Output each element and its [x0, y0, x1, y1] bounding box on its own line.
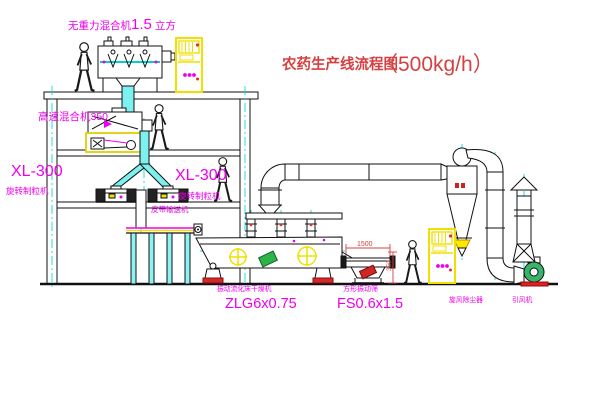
- cad-drawing-canvas: 1500 350 农药生产线流程图 （500kg/h） 无重力混合机1.5立方 …: [0, 0, 600, 403]
- label-granulator-left-name: 旋转制粒机: [6, 186, 49, 196]
- cyclone-separator: [447, 148, 514, 282]
- person-figure-ground: [404, 241, 421, 283]
- label-belt-conveyor: 皮带输送机: [151, 204, 189, 214]
- rotary-granulator-left: [96, 189, 136, 202]
- person-figure-roof: [75, 43, 95, 91]
- exhaust-duct: [258, 164, 452, 213]
- y-chute: [111, 164, 173, 189]
- label-dryer-model: ZLG6x0.75: [225, 296, 297, 312]
- label-granulator-right-model: XL-300: [175, 167, 227, 184]
- exhaust-stack: [511, 177, 537, 262]
- sieve-width-dim: 1500: [357, 241, 373, 248]
- label-fan: 引风机: [512, 295, 533, 304]
- gravity-free-mixer: [98, 37, 175, 113]
- control-cabinet-top: [176, 38, 202, 92]
- label-cyclone: 旋风除尘器: [449, 295, 483, 304]
- person-figure-second-floor: [150, 105, 168, 149]
- belt-conveyor: [126, 224, 202, 284]
- discharge-duct: [136, 190, 146, 228]
- label-gravity-mixer: 无重力混合机1.5立方: [68, 16, 176, 33]
- label-granulator-left-model: XL-300: [11, 163, 63, 180]
- fluid-bed-dryer: [196, 213, 354, 283]
- control-cabinet-ground: [429, 229, 455, 283]
- sieve-height-dim: 350: [386, 260, 393, 271]
- label-dryer-name: 振动流化床干燥机: [217, 284, 272, 293]
- label-sieve-model: FS0.6x1.5: [337, 296, 403, 312]
- process-flow-diagram: 1500 350 农药生产线流程图 （500kg/h） 无重力混合机1.5立方 …: [0, 0, 600, 403]
- label-high-speed-mixer: 高速混合机350: [38, 110, 108, 123]
- diagram-title-capacity: （500kg/h）: [377, 53, 494, 76]
- label-granulator-right-name: 旋转制粒机: [178, 191, 221, 201]
- label-sieve-name: 方形振动筛: [343, 284, 378, 293]
